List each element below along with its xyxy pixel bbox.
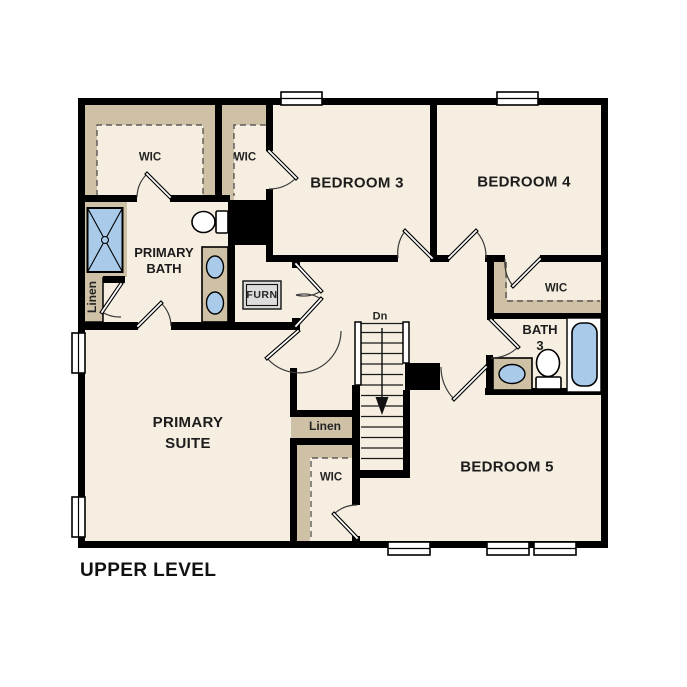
label-wic-bedroom5: WIC (320, 471, 342, 484)
chase-near-bath (228, 200, 273, 245)
shower (88, 208, 123, 272)
wall-stairs-right (403, 390, 410, 472)
label-bedroom5: BEDROOM 5 (460, 458, 554, 475)
label-wic-primary: WIC (139, 151, 161, 164)
wall-wic-bottom-b (170, 195, 230, 202)
wall-bath3-left (487, 255, 494, 320)
wic-primary-shelf-top (85, 105, 215, 125)
wall-linen-stub (103, 276, 125, 283)
label-primary-bath-line1: PRIMARY (134, 245, 193, 261)
label-wic-bedroom3: WIC (234, 151, 256, 164)
stair-rail-right (403, 322, 409, 363)
floor-plan-drawing (0, 0, 687, 687)
wall-bath-bottom-b (171, 322, 300, 330)
label-bedroom4: BEDROOM 4 (477, 173, 571, 190)
plan-title: UPPER LEVEL (80, 560, 216, 582)
wall-wic-bottom-a (78, 195, 137, 202)
bathtub (567, 318, 601, 392)
wall-outer-right (601, 98, 608, 548)
chase-near-stairs (405, 363, 440, 390)
label-wic-bedroom4: WIC (545, 282, 567, 295)
label-furnace: FURN (246, 289, 277, 301)
wall-bed3-bottom (266, 255, 398, 262)
wall-stairs-bottom (352, 470, 410, 478)
wall-bath-bottom-a (78, 322, 138, 330)
wall-bed4-bottom-b (540, 255, 601, 262)
label-primary-bath: PRIMARY BATH (134, 245, 193, 277)
wic-primary-shelf-left (85, 105, 97, 202)
floor-plan-canvas: WIC WIC BEDROOM 3 BEDROOM 4 PRIMARY BATH… (0, 0, 687, 687)
label-bath3-line1: BATH (522, 322, 557, 338)
sink (207, 256, 224, 278)
wall-furnace-left (228, 245, 235, 330)
label-bath3: BATH 3 (522, 322, 557, 354)
label-primary-bath-line2: BATH (134, 261, 193, 277)
wall-wic-divider (215, 98, 222, 202)
wic-bed5-shelf-left (297, 445, 310, 541)
wall-bed3-left-a (266, 98, 273, 151)
wall-bed3-bed4-divider (430, 98, 437, 262)
single-sink-vanity (493, 358, 532, 390)
label-primary-suite: PRIMARY SUITE (153, 412, 224, 454)
wic-bed3-shelf-left (222, 105, 234, 202)
double-sink-vanity (202, 247, 228, 322)
wic-primary-shelf-right (203, 105, 215, 202)
toilet-primary (192, 211, 228, 233)
wall-suite-right-a (290, 368, 297, 417)
wall-linen-hall-bottom (290, 438, 360, 445)
label-linen-upper: Linen (86, 281, 100, 313)
wall-suite-right-b (290, 445, 297, 541)
stair-rail-left (355, 322, 361, 385)
label-stairs-down: Dn (373, 311, 388, 324)
label-linen-hall: Linen (309, 420, 341, 434)
label-bedroom3: BEDROOM 3 (310, 174, 404, 191)
label-primary-suite-line1: PRIMARY (153, 412, 224, 433)
sink (499, 365, 525, 384)
sink (207, 292, 224, 314)
label-primary-suite-line2: SUITE (153, 433, 224, 454)
label-bath3-line2: 3 (522, 338, 557, 354)
wall-linen-hall-top (290, 410, 360, 417)
toilet-bath3 (536, 350, 561, 390)
wic-bed4-shelf-bottom (494, 300, 601, 313)
